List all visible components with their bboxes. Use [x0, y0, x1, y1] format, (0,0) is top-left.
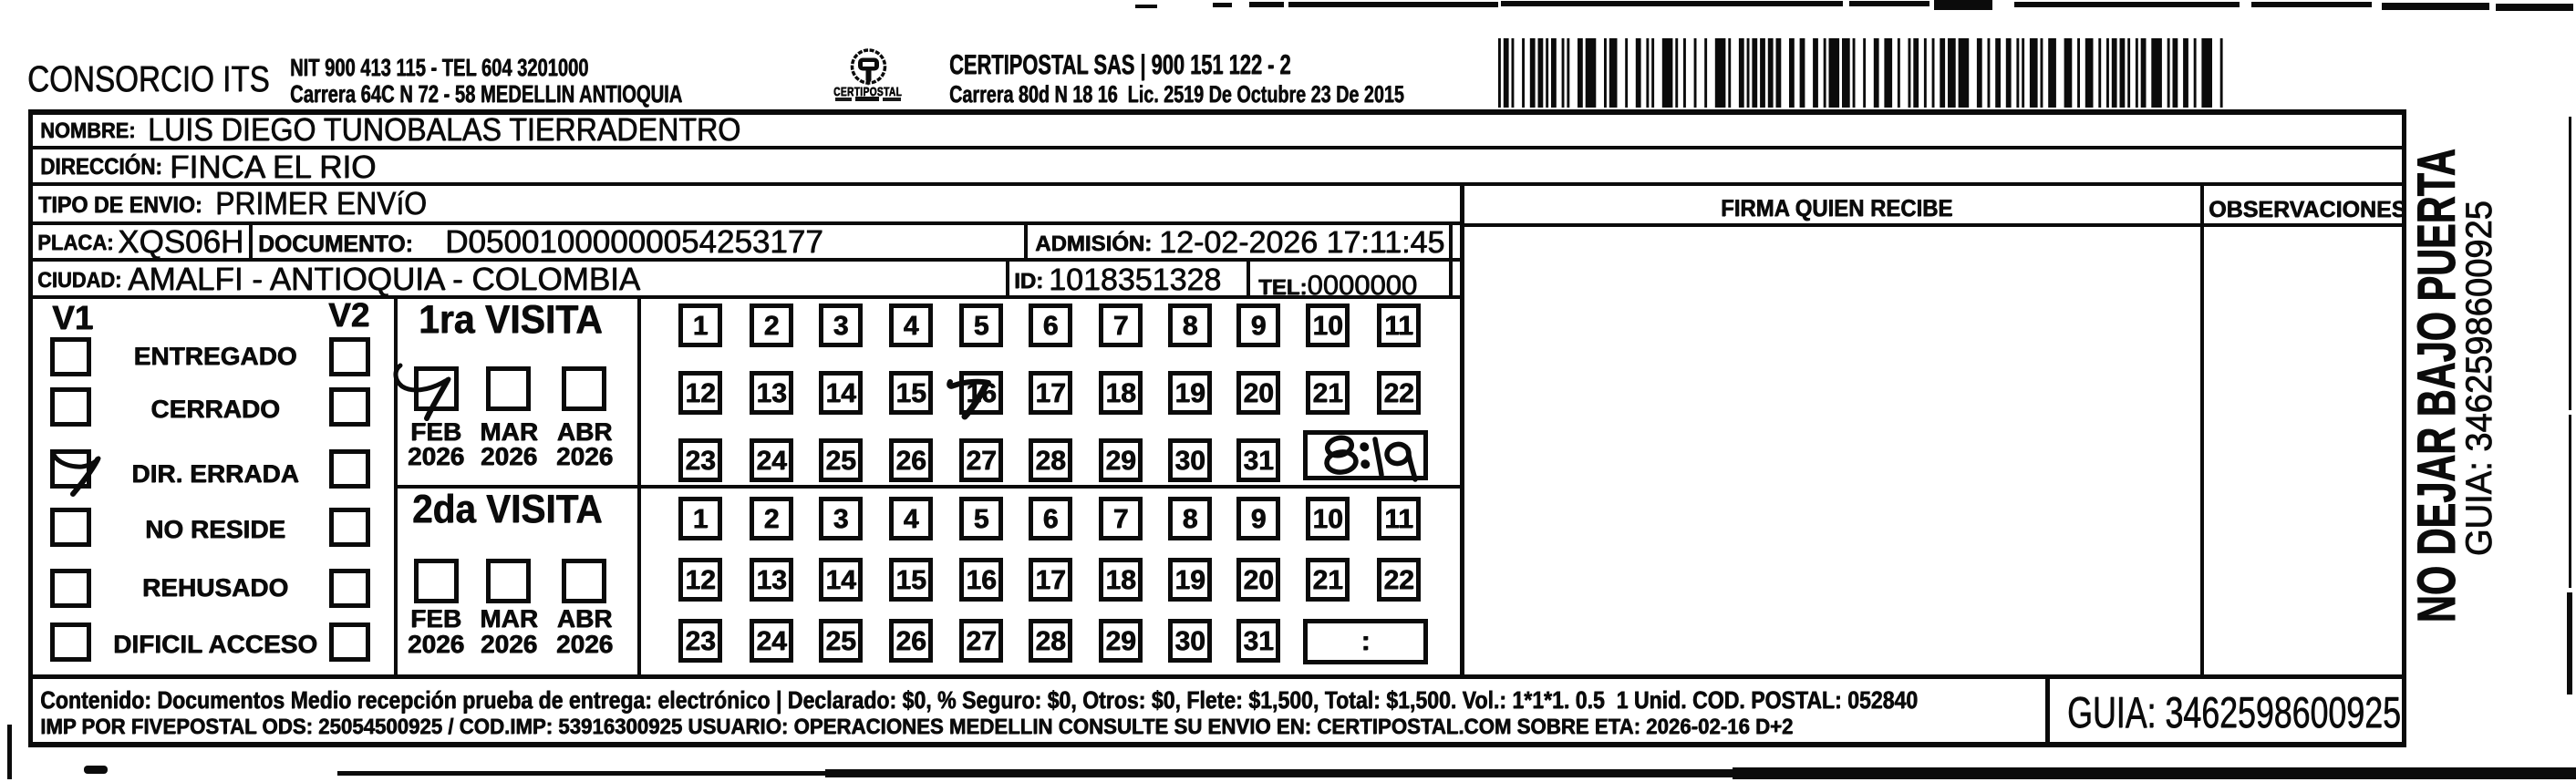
svg-text:GUIA: 3462598600925: GUIA: 3462598600925: [2460, 201, 2499, 556]
svg-text:NO DEJAR BAJO PUERTA: NO DEJAR BAJO PUERTA: [2407, 149, 2466, 623]
